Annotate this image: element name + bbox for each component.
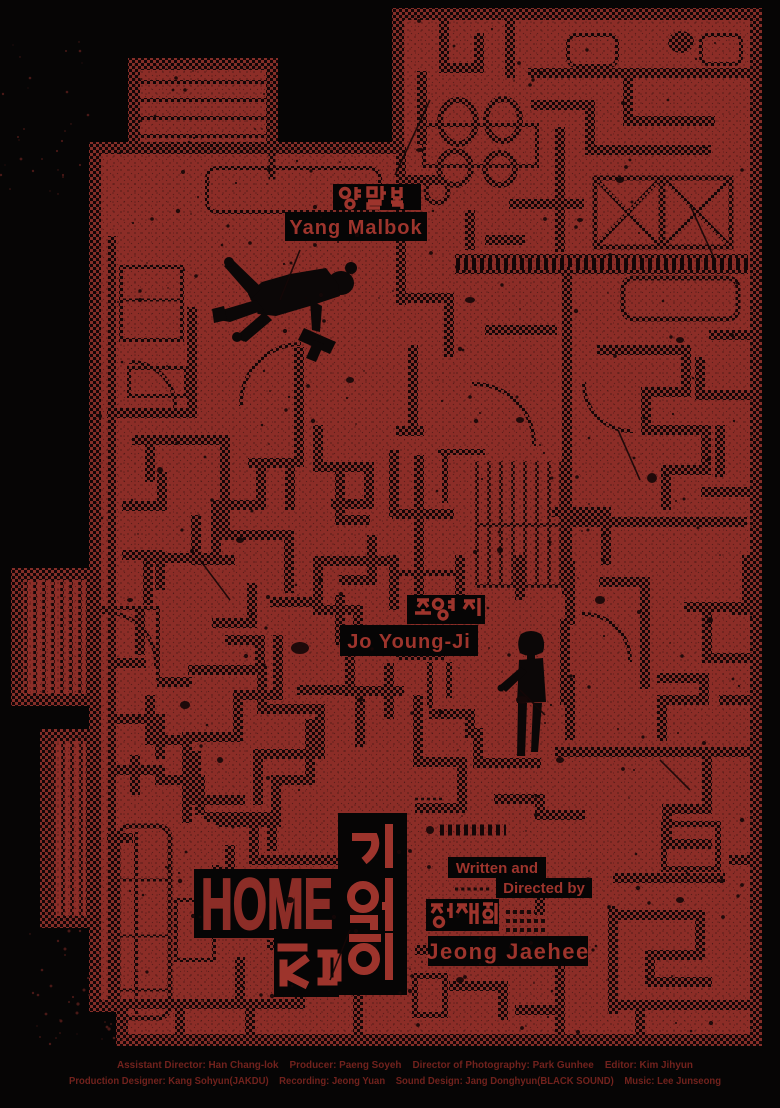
svg-text:Jeong Jaehee: Jeong Jaehee — [426, 939, 590, 964]
svg-text:Directed by: Directed by — [503, 880, 585, 897]
svg-text:Production Designer: Kang Sohy: Production Designer: Kang Sohyun(JAKDU) … — [69, 1076, 721, 1087]
svg-text:Jo Young-Ji: Jo Young-Ji — [347, 631, 471, 653]
svg-text:Written and: Written and — [456, 860, 538, 877]
svg-text:Assistant Director: Han Chang-: Assistant Director: Han Chang-lok Produc… — [117, 1060, 693, 1071]
